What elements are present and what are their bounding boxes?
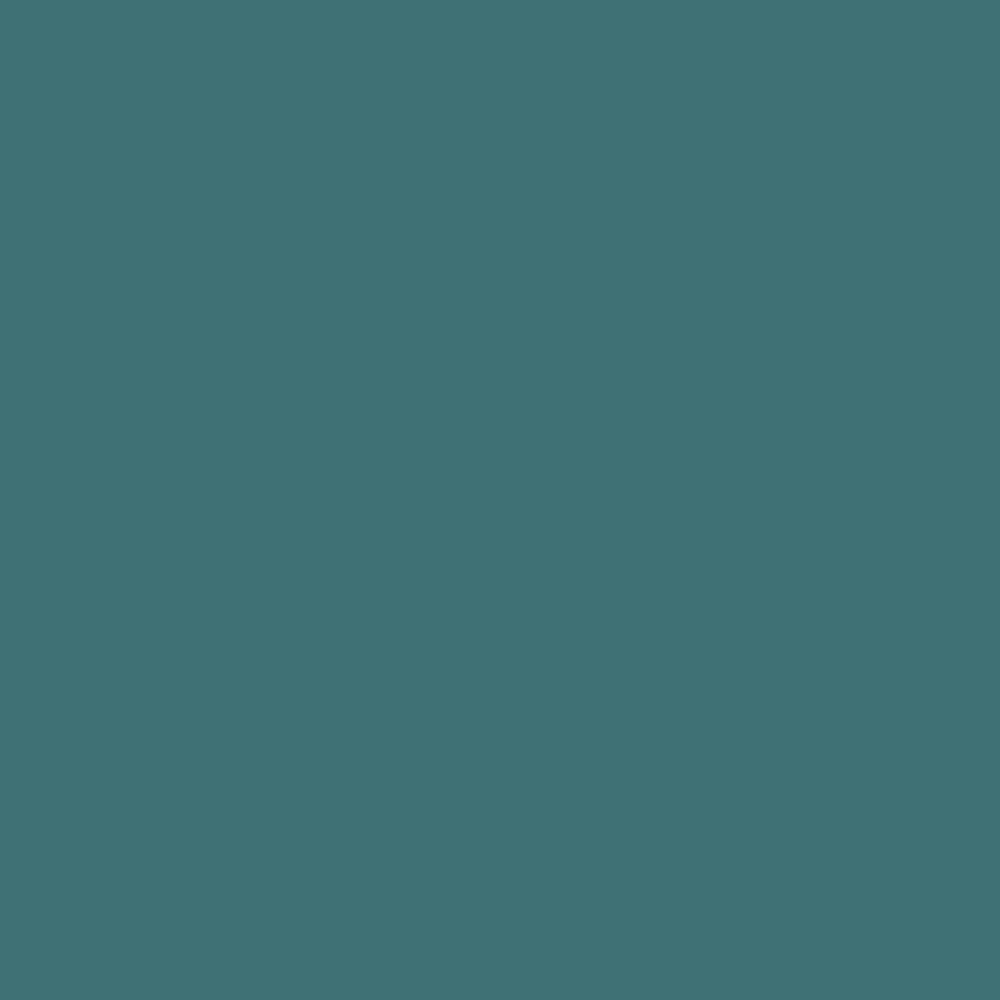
- solid-teal-background: [0, 0, 1000, 1000]
